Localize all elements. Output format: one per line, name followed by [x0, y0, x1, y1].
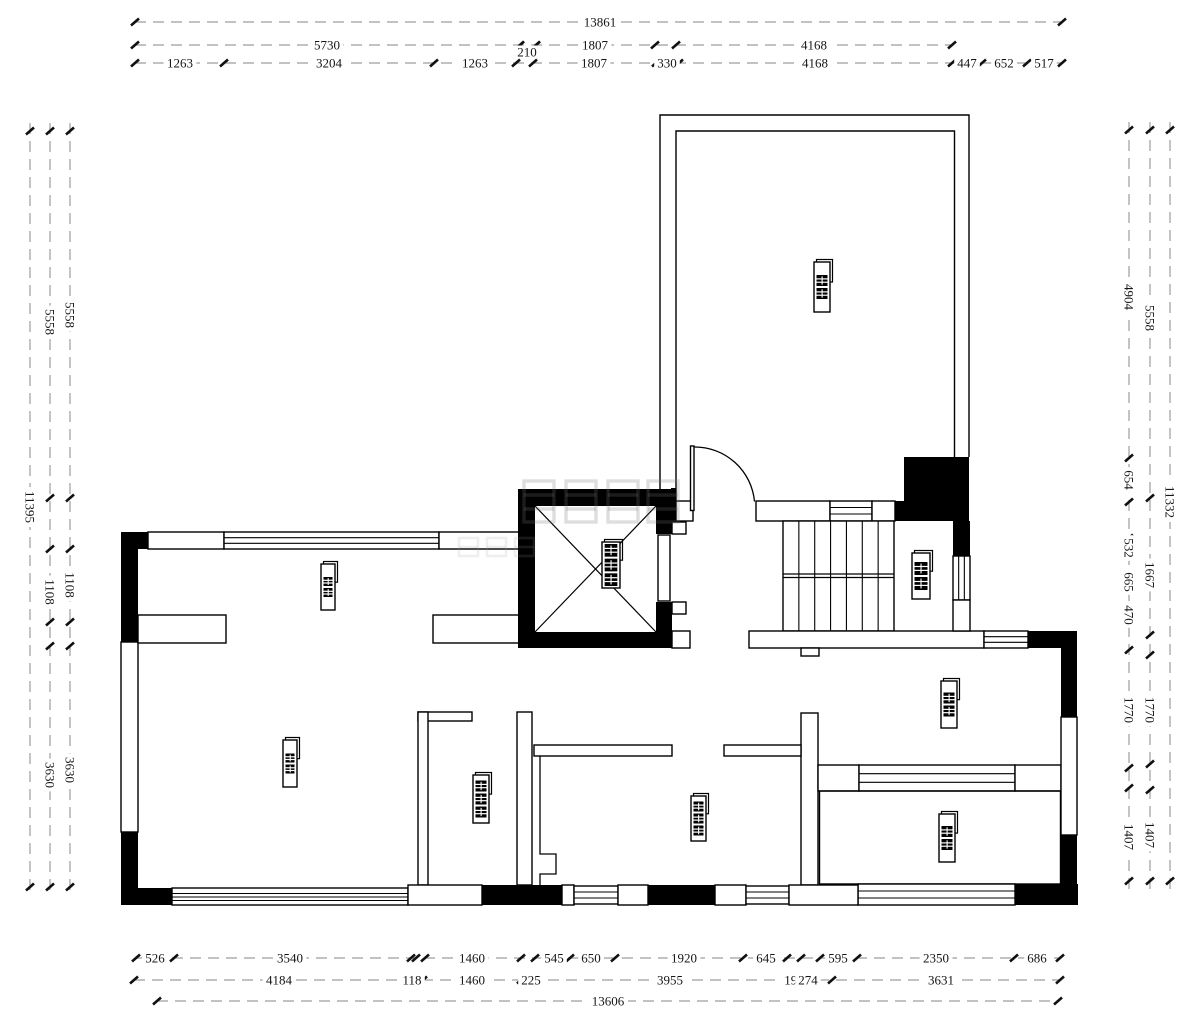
svg-text:225: 225	[521, 973, 541, 988]
svg-text:4168: 4168	[801, 38, 827, 53]
svg-text:3204: 3204	[316, 56, 343, 71]
svg-text:1667: 1667	[1143, 562, 1158, 589]
svg-text:595: 595	[828, 951, 848, 966]
svg-text:1920: 1920	[671, 951, 697, 966]
svg-text:1807: 1807	[581, 56, 608, 71]
svg-text:1407: 1407	[1122, 824, 1137, 851]
svg-text:1807: 1807	[582, 38, 609, 53]
svg-text:5558: 5558	[63, 302, 78, 328]
svg-text:11395: 11395	[23, 491, 38, 523]
svg-text:532: 532	[1122, 538, 1137, 558]
svg-text:5730: 5730	[314, 38, 340, 53]
svg-text:517: 517	[1034, 56, 1054, 71]
svg-text:4184: 4184	[266, 973, 293, 988]
svg-text:3630: 3630	[63, 757, 78, 783]
svg-text:3631: 3631	[928, 973, 954, 988]
svg-text:3630: 3630	[43, 762, 58, 788]
svg-text:1770: 1770	[1122, 697, 1137, 723]
svg-text:5558: 5558	[1143, 305, 1158, 331]
svg-text:447: 447	[957, 56, 977, 71]
svg-text:652: 652	[994, 56, 1014, 71]
svg-text:526: 526	[145, 951, 165, 966]
svg-text:665: 665	[1122, 572, 1137, 592]
svg-text:3540: 3540	[277, 951, 303, 966]
svg-text:118: 118	[402, 973, 421, 988]
svg-text:1407: 1407	[1143, 822, 1158, 849]
svg-text:1770: 1770	[1143, 697, 1158, 723]
svg-text:654: 654	[1122, 470, 1137, 490]
svg-text:545: 545	[544, 951, 564, 966]
svg-text:210: 210	[517, 45, 537, 60]
svg-text:5558: 5558	[43, 309, 58, 335]
svg-text:4904: 4904	[1122, 284, 1137, 311]
svg-text:1108: 1108	[43, 579, 58, 605]
svg-text:470: 470	[1122, 605, 1137, 625]
svg-text:4168: 4168	[802, 56, 828, 71]
svg-text:3955: 3955	[657, 973, 683, 988]
svg-text:645: 645	[756, 951, 776, 966]
svg-text:11332: 11332	[1163, 486, 1178, 518]
svg-text:2350: 2350	[923, 951, 949, 966]
svg-text:1108: 1108	[63, 572, 78, 598]
svg-text:1460: 1460	[459, 973, 485, 988]
svg-text:13606: 13606	[592, 994, 625, 1009]
svg-text:1263: 1263	[462, 56, 488, 71]
svg-text:650: 650	[581, 951, 601, 966]
svg-text:13861: 13861	[584, 15, 617, 30]
svg-text:274: 274	[798, 973, 818, 988]
svg-text:686: 686	[1027, 951, 1047, 966]
svg-text:1460: 1460	[459, 951, 485, 966]
svg-text:330: 330	[657, 56, 677, 71]
svg-text:1263: 1263	[167, 56, 193, 71]
